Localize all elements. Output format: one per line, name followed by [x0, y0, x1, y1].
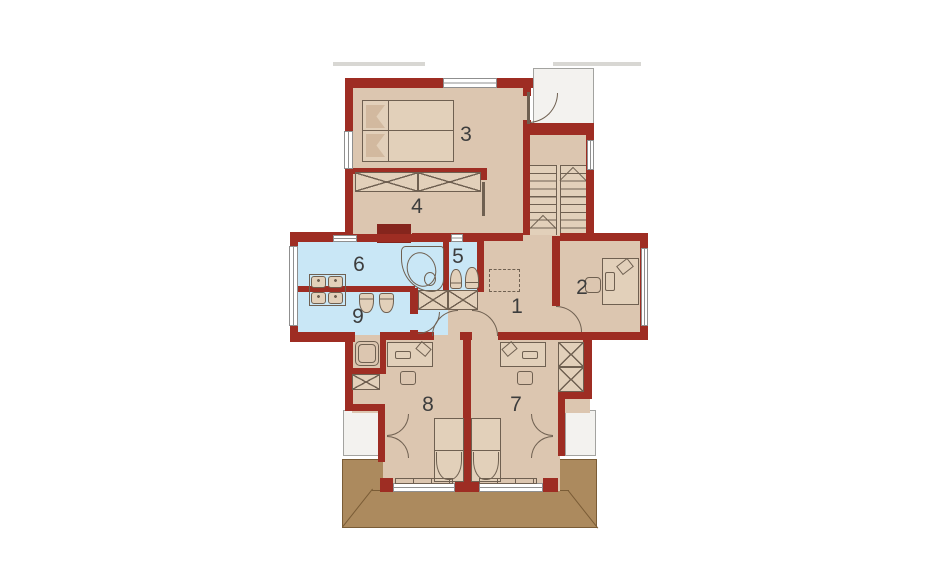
room-label-7: 7: [505, 394, 527, 415]
room-label-5: 5: [447, 246, 469, 267]
roof-edge-line: [333, 62, 425, 66]
wall-segment: [412, 233, 523, 241]
wardrobe: [355, 172, 418, 192]
wall-segment: [410, 288, 418, 314]
washbasin: [328, 292, 343, 304]
washbasin: [328, 276, 343, 288]
wall-segment: [378, 410, 385, 462]
window: [393, 483, 455, 492]
window: [443, 78, 497, 88]
window: [587, 140, 594, 170]
wall-segment: [558, 399, 565, 456]
desk-drawer: [605, 272, 615, 291]
desk-tray: [522, 351, 538, 359]
wardrobe: [418, 290, 448, 310]
duct-shaft: [352, 374, 380, 390]
wall-segment: [345, 78, 533, 88]
room-label-4: 4: [406, 196, 428, 217]
bathtub-seat: [424, 272, 436, 286]
window: [344, 131, 353, 169]
wall-pier: [380, 478, 393, 492]
wall-segment: [463, 335, 471, 483]
wall-segment: [480, 168, 487, 180]
wall-pier: [543, 478, 558, 492]
chair: [400, 371, 416, 385]
radiator: [479, 478, 537, 484]
wardrobe: [558, 342, 584, 367]
bidet: [450, 269, 462, 289]
wall-segment: [552, 236, 560, 306]
wardrobe: [558, 367, 584, 392]
room-label-6: 6: [348, 254, 370, 275]
chair: [517, 371, 533, 385]
roof-space-right: [565, 410, 596, 456]
wardrobe: [418, 172, 481, 192]
room-label-9: 9: [347, 306, 369, 327]
wall-segment: [560, 233, 648, 241]
desk-tray: [395, 351, 411, 359]
window: [289, 246, 298, 326]
shower-inner: [358, 344, 376, 363]
wall-segment: [523, 123, 594, 135]
wardrobe: [448, 290, 478, 310]
floor-plan: 1 2 3 4 5 6 7 8 9: [0, 0, 940, 587]
window: [333, 235, 357, 242]
door-leaf: [482, 182, 485, 216]
room-label-1: 1: [506, 296, 528, 317]
wall-segment: [380, 332, 412, 340]
wall-segment: [583, 338, 592, 394]
radiator: [395, 478, 453, 484]
ceiling-hatch-dashed: [489, 269, 520, 292]
washbasin: [311, 276, 326, 288]
staircase-stringer: [556, 165, 561, 235]
washbasin: [311, 292, 326, 304]
bed-line: [362, 130, 454, 131]
window: [479, 483, 543, 492]
wall-segment: [560, 332, 648, 340]
toilet: [465, 267, 479, 289]
wall-segment: [523, 135, 530, 235]
room-label-2: 2: [571, 277, 593, 298]
roof-edge-line: [553, 62, 641, 66]
terrace-hip-line: [342, 489, 373, 528]
wall-segment: [558, 392, 592, 399]
terrace-hip-line: [567, 490, 598, 529]
window: [641, 248, 648, 326]
room-label-8: 8: [417, 394, 439, 415]
window: [451, 234, 463, 242]
room-label-3: 3: [455, 124, 477, 145]
